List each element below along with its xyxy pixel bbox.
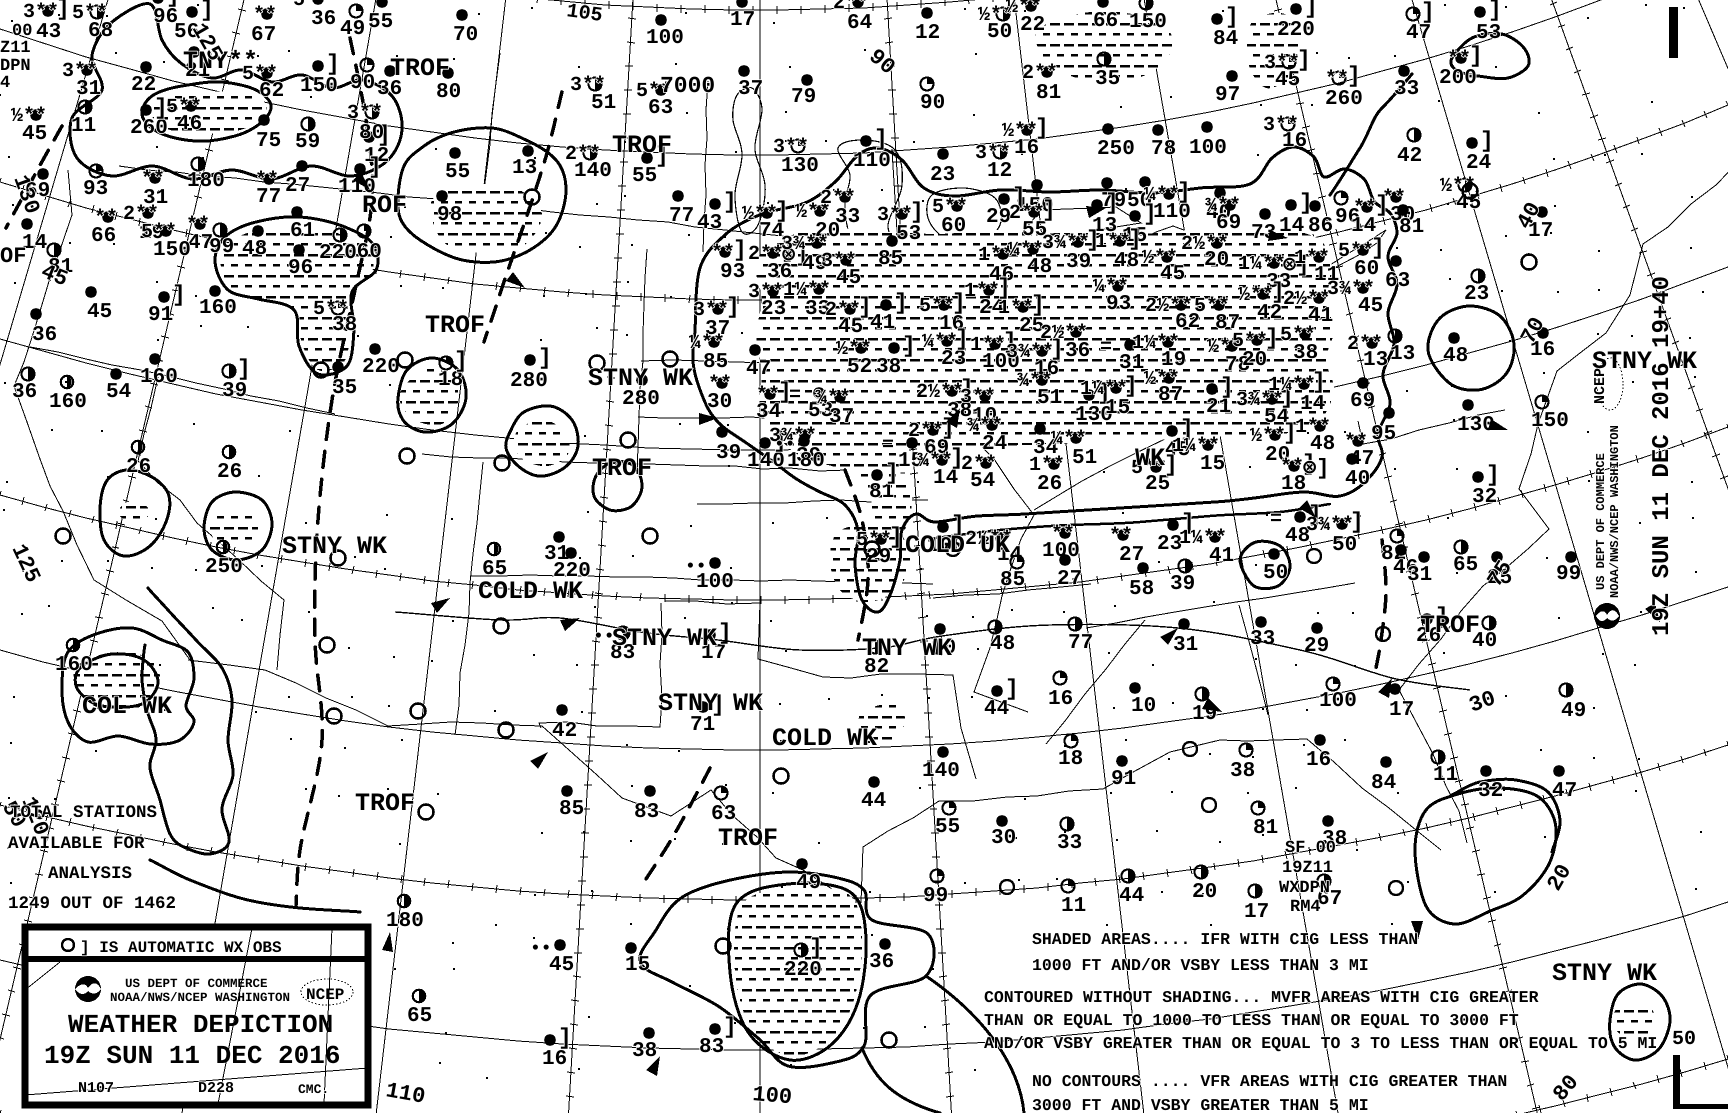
svg-text:49: 49 (340, 18, 365, 41)
svg-text:55: 55 (935, 816, 960, 839)
svg-text:Z11: Z11 (0, 39, 31, 58)
svg-text:½**: ½** (1250, 425, 1286, 448)
svg-text:98: 98 (437, 204, 462, 227)
svg-text:AVAILABLE FOR: AVAILABLE FOR (8, 834, 145, 854)
svg-text:2**: 2** (1009, 202, 1045, 225)
svg-text:1**: 1** (998, 297, 1034, 320)
svg-text:TROF: TROF (425, 311, 485, 340)
svg-text:**: ** (708, 373, 732, 396)
svg-text:110: 110 (853, 150, 891, 173)
svg-text:]: ] (1304, 0, 1318, 20)
svg-text:20: 20 (1192, 881, 1217, 904)
svg-text:3**: 3** (773, 136, 809, 159)
svg-text:1¼**: 1¼** (783, 279, 831, 302)
svg-text:80: 80 (359, 122, 384, 145)
svg-text:COLD WK: COLD WK (478, 577, 583, 606)
svg-text:]: ] (1105, 190, 1119, 216)
svg-text:]: ] (1297, 47, 1311, 73)
svg-text:18: 18 (1058, 748, 1083, 771)
svg-text:16: 16 (542, 1048, 567, 1071)
svg-text:1**: 1** (1294, 247, 1330, 270)
svg-text:80: 80 (436, 81, 461, 104)
svg-text:TROF: TROF (355, 789, 415, 818)
svg-text:83: 83 (634, 801, 659, 824)
svg-text:3**: 3** (960, 386, 996, 409)
svg-text:30: 30 (991, 827, 1016, 850)
svg-text:93: 93 (83, 178, 108, 201)
svg-text:77: 77 (669, 205, 694, 228)
svg-text:29: 29 (986, 206, 1011, 229)
svg-text:1¼**: 1¼** (1238, 253, 1286, 276)
svg-text:NOAA/NWS/NCEP WASHINGTON: NOAA/NWS/NCEP WASHINGTON (110, 991, 290, 1005)
svg-text:]: ] (1347, 63, 1361, 89)
svg-text:TNY WK: TNY WK (862, 634, 952, 663)
svg-text:¾**: ¾** (815, 387, 851, 410)
svg-text:1¼**: 1¼** (1132, 332, 1180, 355)
svg-text:**: ** (186, 214, 210, 237)
svg-text:00: 00 (12, 22, 32, 41)
svg-text:]: ] (1128, 226, 1142, 252)
svg-text:150: 150 (1531, 410, 1569, 433)
svg-text:45: 45 (549, 954, 574, 977)
svg-text:]: ] (1005, 676, 1019, 702)
svg-text:¼**: ¼** (689, 332, 725, 355)
svg-text:99: 99 (923, 885, 948, 908)
svg-text:150: 150 (1129, 11, 1167, 34)
svg-text:WXDPN: WXDPN (1279, 879, 1330, 898)
svg-text:49: 49 (1561, 700, 1586, 723)
svg-text:COLD WK: COLD WK (772, 724, 877, 753)
svg-text:5**: 5** (1194, 295, 1230, 318)
svg-text:50: 50 (1672, 1028, 1696, 1051)
svg-text:31: 31 (1119, 352, 1144, 375)
svg-text:1¼**: 1¼** (1080, 378, 1128, 401)
svg-text:]: ] (558, 1025, 572, 1051)
svg-text:33: 33 (1394, 78, 1419, 101)
svg-text:39: 39 (1170, 573, 1195, 596)
svg-text:91: 91 (1111, 768, 1136, 791)
svg-text:78: 78 (1151, 138, 1176, 161)
svg-text:½**: ½** (1238, 284, 1274, 307)
svg-text:ANALYSIS: ANALYSIS (48, 864, 132, 884)
svg-text:160: 160 (199, 297, 237, 320)
svg-text:84: 84 (1371, 772, 1396, 795)
svg-text:]: ] (733, 237, 747, 263)
svg-text:TROF: TROF (390, 54, 450, 83)
svg-text:]: ] (166, 0, 180, 9)
svg-text:]: ] (538, 345, 552, 371)
svg-text:66: 66 (1093, 10, 1118, 33)
svg-text:36: 36 (869, 951, 894, 974)
svg-text:5**: 5** (919, 295, 955, 318)
svg-text:75: 75 (256, 130, 281, 153)
svg-text:10: 10 (1131, 695, 1156, 718)
svg-text:69: 69 (1350, 390, 1375, 413)
svg-text:140: 140 (922, 760, 960, 783)
svg-text:½**: ½** (1440, 175, 1476, 198)
svg-text:38: 38 (876, 356, 901, 379)
svg-text:]: ] (723, 1014, 737, 1040)
svg-text:]: ] (1375, 192, 1389, 218)
svg-text:47: 47 (746, 358, 771, 381)
svg-text:35: 35 (332, 377, 357, 400)
svg-text:SHADED AREAS.... IFR WITH CIG: SHADED AREAS.... IFR WITH CIG LESS THAN (1032, 930, 1418, 949)
svg-text:¼**: ¼** (1051, 428, 1087, 451)
svg-text:**: ** (1447, 48, 1471, 71)
svg-text:5**: 5** (1338, 240, 1374, 263)
svg-text:31: 31 (1407, 564, 1432, 587)
svg-text:64: 64 (847, 12, 872, 35)
svg-text:1**: 1** (970, 334, 1006, 357)
svg-text:¼**: ¼** (1093, 276, 1129, 299)
svg-text:SF 00: SF 00 (1285, 839, 1336, 858)
svg-text:**: ** (1325, 68, 1349, 91)
svg-text:41: 41 (870, 312, 895, 335)
svg-text:2**: 2** (820, 187, 856, 210)
svg-text:12: 12 (915, 22, 940, 45)
svg-text:2**: 2** (833, 0, 869, 15)
svg-text:47: 47 (1406, 22, 1431, 45)
svg-text:61: 61 (290, 220, 315, 243)
svg-text:1**: 1** (1095, 231, 1131, 254)
svg-text:53: 53 (1476, 22, 1501, 45)
svg-text:]: ] (1469, 43, 1483, 69)
svg-text:TROF: TROF (592, 454, 652, 483)
svg-text:**: ** (756, 384, 780, 407)
svg-text:STNY WK: STNY WK (588, 364, 693, 393)
svg-text:160: 160 (140, 366, 178, 389)
svg-text:3¾**: 3¾** (1327, 278, 1375, 301)
svg-text:]: ] (955, 326, 969, 352)
svg-text:91: 91 (148, 304, 173, 327)
svg-text:]: ] (1312, 369, 1326, 395)
svg-text:150: 150 (300, 75, 338, 98)
svg-text:1¼**: 1¼** (1179, 527, 1227, 550)
svg-text:**: ** (1280, 456, 1304, 479)
svg-text:WEATHER DEPICTION: WEATHER DEPICTION (68, 1010, 333, 1040)
svg-text:58: 58 (1129, 578, 1154, 601)
svg-text:160: 160 (55, 654, 93, 677)
svg-text:40: 40 (1345, 468, 1370, 491)
svg-text:220: 220 (784, 959, 822, 982)
svg-text:STNY WK: STNY WK (1552, 959, 1657, 988)
svg-text:¾**: ¾** (1205, 195, 1241, 218)
svg-text:5**: 5** (932, 196, 968, 219)
svg-text:97: 97 (1215, 84, 1240, 107)
svg-text:250: 250 (1097, 138, 1135, 161)
svg-text:180: 180 (187, 170, 225, 193)
svg-text:**: ** (141, 168, 165, 191)
svg-text:1000 FT AND/OR VSBY LESS THAN: 1000 FT AND/OR VSBY LESS THAN 3 MI (1032, 956, 1369, 975)
svg-text:5**: 5** (1232, 330, 1268, 353)
svg-text:260: 260 (1325, 88, 1363, 111)
svg-text:39: 39 (222, 380, 247, 403)
svg-text:250: 250 (205, 556, 243, 579)
svg-text:4: 4 (0, 74, 10, 93)
svg-text:½**: ½** (1002, 120, 1038, 143)
svg-text:]: ] (1031, 292, 1045, 318)
svg-text:47: 47 (1552, 780, 1577, 803)
svg-text:]: ] (1177, 179, 1191, 205)
svg-text:]: ] (874, 126, 888, 152)
svg-text:¾**: ¾** (967, 415, 1003, 438)
svg-text:31: 31 (1173, 634, 1198, 657)
svg-text:]: ] (902, 333, 916, 359)
svg-text:65: 65 (1453, 554, 1478, 577)
svg-text:55: 55 (445, 161, 470, 184)
svg-text:½**: ½** (11, 105, 47, 128)
svg-text:39: 39 (716, 442, 741, 465)
svg-text:99: 99 (209, 236, 234, 259)
svg-text:180: 180 (386, 910, 424, 933)
svg-text:] IS AUTOMATIC WX OBS: ] IS AUTOMATIC WX OBS (80, 939, 282, 957)
svg-text:81: 81 (1399, 216, 1424, 239)
svg-text:¾**: ¾** (1017, 370, 1053, 393)
svg-text:]: ] (56, 0, 70, 22)
svg-text:2**: 2** (908, 420, 944, 443)
svg-text:130: 130 (1457, 414, 1495, 437)
svg-text:]: ] (1042, 197, 1056, 223)
svg-text:=: = (882, 434, 894, 457)
svg-text:OF: OF (0, 244, 26, 269)
svg-text:44: 44 (1119, 885, 1144, 908)
svg-text:63: 63 (711, 803, 736, 826)
svg-text:COL WK: COL WK (82, 692, 172, 721)
svg-text:]: ] (1421, 0, 1435, 25)
svg-text:5**: 5** (313, 298, 349, 321)
svg-text:17: 17 (730, 9, 755, 32)
svg-text:3¾**: 3¾** (1306, 514, 1354, 537)
svg-text:3**: 3** (62, 60, 98, 83)
svg-text:**: ** (711, 242, 735, 265)
svg-text:36: 36 (12, 381, 37, 404)
svg-text:1¼**: 1¼** (1268, 374, 1316, 397)
svg-text:]: ] (1480, 128, 1494, 154)
svg-text:NO CONTOURS .... VFR AREAS WIT: NO CONTOURS .... VFR AREAS WITH CIG GREA… (1032, 1072, 1507, 1091)
svg-text:11: 11 (1433, 764, 1458, 787)
svg-text:WK: WK (1135, 444, 1165, 473)
svg-text:49: 49 (796, 872, 821, 895)
svg-text:19Z SUN 11 DEC 2016 19+40: 19Z SUN 11 DEC 2016 19+40 (1649, 276, 1676, 636)
svg-text:½**: ½** (836, 338, 872, 361)
svg-text:]: ] (885, 460, 899, 486)
svg-text:13: 13 (512, 157, 537, 180)
svg-text:86: 86 (1308, 215, 1333, 238)
svg-text:TROF: TROF (718, 824, 778, 853)
svg-text:2**: 2** (1022, 62, 1058, 85)
svg-text:65: 65 (407, 1005, 432, 1028)
svg-text:2**: 2** (825, 299, 861, 322)
svg-text:3**: 3** (748, 281, 784, 304)
svg-text:½**: ½** (1142, 247, 1178, 270)
svg-text:22: 22 (131, 74, 156, 97)
svg-text:NCEP: NCEP (306, 986, 344, 1004)
svg-text:=: = (789, 384, 801, 407)
svg-text:13: 13 (1390, 343, 1415, 366)
svg-text:AND/OR VSBY GREATER THAN OR EQ: AND/OR VSBY GREATER THAN OR EQUAL TO 3 T… (984, 1034, 1657, 1053)
svg-text:2½**: 2½** (1181, 233, 1229, 256)
svg-text:63: 63 (1385, 270, 1410, 293)
svg-text:**: ** (94, 207, 118, 230)
svg-text:38: 38 (1230, 760, 1255, 783)
svg-text:3**: 3** (570, 74, 606, 97)
svg-text:**: ** (253, 4, 277, 27)
svg-text:5**: 5** (72, 2, 108, 25)
svg-text:3**: 3** (1263, 114, 1299, 137)
svg-text:N107: N107 (78, 1080, 114, 1097)
svg-text:¼**: ¼** (1008, 239, 1044, 262)
svg-text:23: 23 (930, 164, 955, 187)
svg-text:]: ] (726, 294, 740, 320)
svg-text:1**: 1** (1029, 454, 1065, 477)
svg-text:]: ] (1124, 373, 1138, 399)
svg-text:100: 100 (1319, 690, 1357, 713)
svg-text:27: 27 (1057, 568, 1082, 591)
svg-text:45: 45 (87, 301, 112, 324)
svg-text:7000: 7000 (660, 73, 715, 99)
svg-text:48: 48 (1443, 345, 1468, 368)
svg-text:100: 100 (751, 1082, 793, 1110)
svg-text:79: 79 (791, 86, 816, 109)
svg-text:84: 84 (1213, 28, 1238, 51)
svg-text:220: 220 (362, 356, 400, 379)
svg-text:26: 26 (217, 461, 242, 484)
svg-text:2½**: 2½** (1145, 295, 1193, 318)
svg-text:¾**: ¾** (917, 450, 953, 473)
svg-text:¼**: ¼** (922, 331, 958, 354)
svg-text:32: 32 (1472, 486, 1497, 509)
svg-text:280: 280 (510, 370, 548, 393)
svg-text:3**: 3** (877, 204, 913, 227)
svg-text:]: ] (894, 290, 908, 316)
svg-text:]: ] (1488, 0, 1502, 23)
svg-text:3**: 3** (821, 250, 857, 273)
svg-text:27: 27 (285, 175, 310, 198)
svg-text:]: ] (1220, 374, 1234, 400)
svg-text:54: 54 (106, 381, 131, 404)
svg-text:23: 23 (1464, 283, 1489, 306)
svg-text:3000 FT AND VSBY GREATER THAN: 3000 FT AND VSBY GREATER THAN 5 MI (1032, 1096, 1369, 1113)
svg-text:US DEPT OF COMMERCE: US DEPT OF COMMERCE (1594, 453, 1608, 590)
svg-text:96: 96 (288, 257, 313, 280)
svg-text:3**: 3** (1264, 52, 1300, 75)
svg-text:50: 50 (1332, 534, 1357, 557)
svg-text:14: 14 (1279, 215, 1304, 238)
svg-text:77: 77 (1068, 632, 1093, 655)
svg-text:42: 42 (1397, 145, 1422, 168)
svg-text:5**: 5** (141, 221, 177, 244)
svg-text:]: ] (910, 199, 924, 225)
svg-text:59: 59 (295, 131, 320, 154)
svg-text:]: ] (809, 935, 823, 961)
svg-text:••: •• (685, 557, 707, 577)
svg-text:90: 90 (350, 72, 375, 95)
svg-text:]: ] (237, 356, 251, 382)
svg-text:TOTAL STATIONS: TOTAL STATIONS (10, 803, 157, 823)
svg-text:43: 43 (36, 21, 61, 44)
svg-text:220: 220 (1277, 19, 1315, 42)
svg-text:1**: 1** (1295, 416, 1331, 439)
svg-text:]: ] (326, 51, 340, 77)
svg-text:]: ] (1035, 115, 1049, 141)
svg-text:17: 17 (1389, 699, 1414, 722)
svg-text:]: ] (723, 189, 737, 215)
svg-text:2½**: 2½** (1283, 288, 1331, 311)
svg-text:ROF: ROF (362, 191, 407, 220)
svg-text:43: 43 (697, 212, 722, 235)
svg-text:19Z SUN 11 DEC 2016: 19Z SUN 11 DEC 2016 (44, 1041, 340, 1071)
svg-text:TROF: TROF (1420, 611, 1480, 640)
svg-text:85: 85 (1000, 569, 1025, 592)
svg-text:1249 OUT OF 1462: 1249 OUT OF 1462 (8, 894, 176, 914)
svg-text:½**: ½** (1144, 368, 1180, 391)
svg-text:42: 42 (552, 720, 577, 743)
svg-text:99: 99 (1556, 563, 1581, 586)
svg-text:¼**: ¼** (1144, 184, 1180, 207)
svg-text:26: 26 (126, 456, 151, 479)
svg-text:1¼**: 1¼** (1172, 435, 1220, 458)
svg-text:160: 160 (49, 391, 87, 414)
svg-text:2**: 2** (748, 243, 784, 266)
svg-text:STNY WK: STNY WK (612, 624, 717, 653)
svg-text:]: ] (889, 524, 903, 550)
svg-text:5**: 5** (293, 0, 329, 12)
svg-text:3**: 3** (693, 299, 729, 322)
svg-text:95: 95 (1371, 423, 1396, 446)
svg-text:]: ] (1486, 462, 1500, 488)
svg-text:2**: 2** (1347, 333, 1383, 356)
svg-text:CMC.: CMC. (298, 1082, 329, 1097)
svg-text:70: 70 (453, 24, 478, 47)
svg-text:CONTOURED WITHOUT SHADING... M: CONTOURED WITHOUT SHADING... MVFR AREAS … (984, 988, 1539, 1007)
svg-text:NOAA/NWS/NCEP WASHINGTON: NOAA/NWS/NCEP WASHINGTON (1608, 425, 1622, 598)
svg-text:=: = (1270, 508, 1282, 531)
svg-text:83: 83 (699, 1036, 724, 1059)
svg-text:NCEP: NCEP (1592, 368, 1609, 404)
svg-text:19Z11: 19Z11 (1282, 859, 1333, 878)
svg-text:81: 81 (1036, 82, 1061, 105)
svg-text:**: ** (1109, 525, 1133, 548)
svg-text:]: ] (775, 198, 789, 224)
svg-text:50: 50 (1263, 562, 1288, 585)
svg-text:½**: ½** (742, 203, 778, 226)
svg-text:2½**: 2½** (1040, 322, 1088, 345)
svg-text:]: ] (1371, 235, 1385, 261)
svg-text:16: 16 (1306, 749, 1331, 772)
svg-text:**: ** (1051, 523, 1075, 546)
svg-text:38: 38 (632, 1040, 657, 1063)
svg-text:**: ** (255, 169, 279, 192)
svg-text:220: 220 (319, 242, 357, 265)
svg-text:15: 15 (625, 954, 650, 977)
svg-text:3**: 3** (23, 1, 59, 24)
svg-text:24: 24 (1466, 152, 1491, 175)
svg-text:2½**: 2½** (916, 381, 964, 404)
svg-text:55: 55 (368, 11, 393, 34)
svg-text:44: 44 (861, 790, 886, 813)
svg-text:]: ] (1350, 509, 1364, 535)
svg-text:32: 32 (1478, 780, 1503, 803)
svg-text:]: ] (1225, 4, 1239, 30)
svg-text:48: 48 (990, 633, 1015, 656)
svg-text:⊗]: ⊗] (1303, 456, 1329, 481)
svg-text:**: ** (1344, 431, 1368, 454)
svg-text:85: 85 (559, 798, 584, 821)
svg-text:16: 16 (1048, 688, 1073, 711)
svg-text:**: ** (1353, 197, 1377, 220)
svg-text:11: 11 (71, 115, 96, 138)
svg-text:2**: 2** (961, 453, 997, 476)
